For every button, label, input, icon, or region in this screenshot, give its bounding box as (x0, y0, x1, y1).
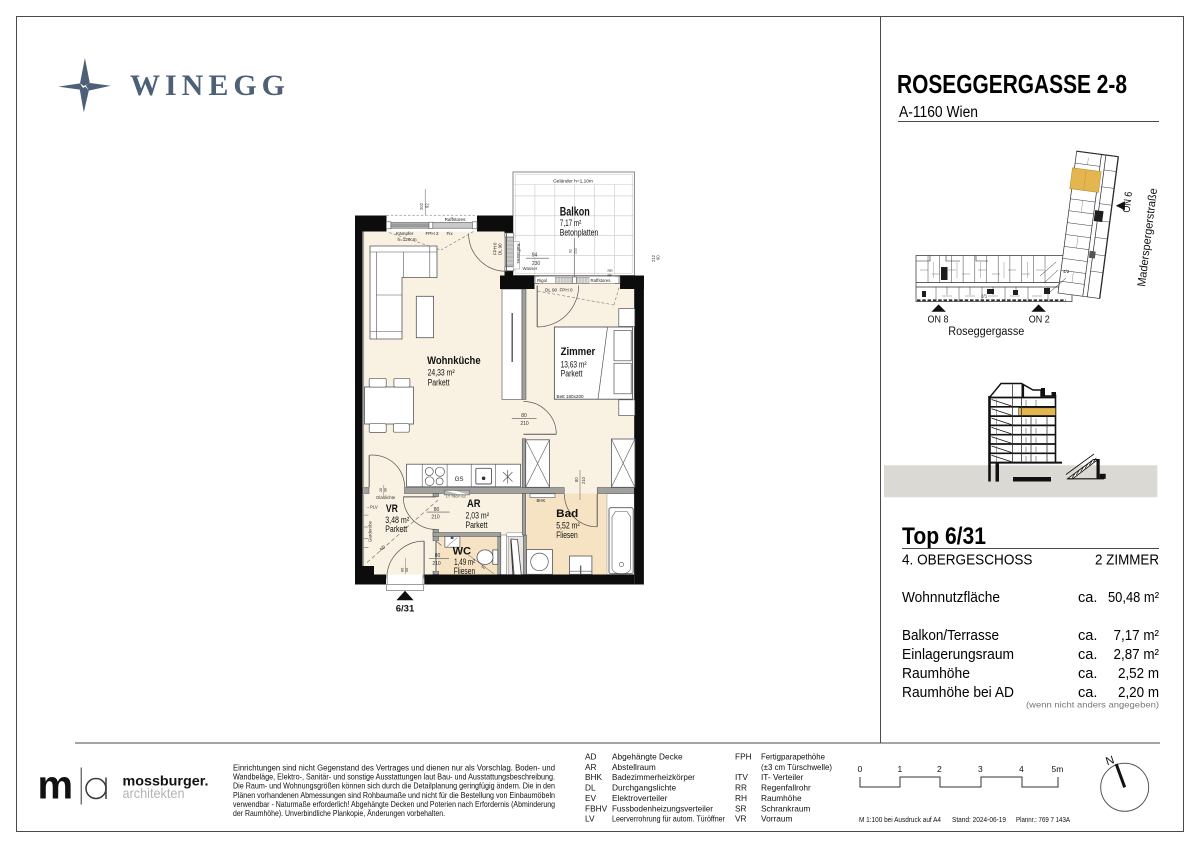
svg-text:Stand: 2024-06-19: Stand: 2024-06-19 (952, 815, 1006, 824)
svg-text:Parkett: Parkett (466, 520, 488, 530)
svg-text:7,17 m²: 7,17 m² (1114, 628, 1160, 644)
svg-text:Zimmer: Zimmer (561, 346, 596, 358)
svg-text:LT 78cm Ez: LT 78cm Ez (446, 495, 466, 499)
svg-text:Abstellraum: Abstellraum (612, 762, 656, 772)
svg-text:IT- Verteiler: IT- Verteiler (761, 772, 804, 782)
svg-text:ON 2: ON 2 (1029, 314, 1050, 326)
svg-text:4: 4 (1019, 764, 1024, 774)
svg-text:Wohnküche: Wohnküche (427, 355, 481, 367)
svg-text:DL 90: DL 90 (545, 288, 558, 293)
svg-text:RR: RR (735, 783, 747, 793)
svg-text:Parkett: Parkett (561, 368, 583, 378)
svg-text:80: 80 (435, 553, 441, 559)
svg-text:AD: AD (585, 752, 597, 762)
svg-text:98: 98 (384, 488, 388, 492)
svg-text:Regenfallrohr: Regenfallrohr (761, 783, 811, 793)
svg-text:Balkon: Balkon (560, 207, 590, 219)
svg-text:h=120cm: h=120cm (398, 237, 417, 242)
svg-text:4/2: 4/2 (1063, 269, 1070, 274)
svg-text:94: 94 (532, 253, 538, 259)
svg-text:ca.: ca. (1078, 590, 1097, 606)
svg-text:Vorraum: Vorraum (761, 814, 792, 824)
svg-text:80: 80 (574, 477, 579, 482)
svg-text:AR: AR (467, 498, 481, 510)
svg-text:210: 210 (581, 476, 586, 484)
svg-text:2: 2 (937, 764, 942, 774)
svg-text:Kämpfer: Kämpfer (396, 231, 414, 236)
svg-text:ca.: ca. (1078, 666, 1097, 682)
svg-text:Rigol: Rigol (537, 278, 547, 283)
svg-text:Einlagerungsraum: Einlagerungsraum (902, 647, 1014, 663)
svg-text:Raumhöhe bei AD: Raumhöhe bei AD (902, 685, 1014, 701)
svg-text:ON 8: ON 8 (928, 314, 949, 326)
svg-text:0: 0 (858, 764, 863, 774)
svg-text:Raumhöhe: Raumhöhe (761, 793, 802, 803)
svg-text:Raumhöhe: Raumhöhe (902, 666, 970, 682)
svg-text:Abgehängte Decke: Abgehängte Decke (612, 752, 683, 762)
svg-text:RR: RR (608, 269, 614, 273)
svg-text:Top 6/31: Top 6/31 (902, 523, 986, 550)
svg-text:ITV: ITV (735, 772, 748, 782)
svg-text:SR: SR (735, 803, 747, 813)
svg-text:ca.: ca. (1078, 647, 1097, 663)
svg-text:92: 92 (569, 249, 573, 253)
svg-text:6/31: 6/31 (396, 604, 415, 615)
svg-text:Roseggergasse: Roseggergasse (948, 326, 1024, 338)
svg-text:7,17 m²: 7,17 m² (560, 218, 582, 228)
svg-text:Durchgangslichte: Durchgangslichte (612, 783, 676, 793)
svg-text:202: 202 (419, 202, 424, 210)
svg-text:(±3 cm Türschwelle): (±3 cm Türschwelle) (761, 762, 832, 772)
svg-text:Bett 180x200: Bett 180x200 (557, 394, 585, 399)
svg-text:Wohnnutzfläche: Wohnnutzfläche (902, 590, 1000, 606)
svg-text:Plannr.: 769 7 143A: Plannr.: 769 7 143A (1016, 815, 1070, 824)
svg-text:ca.: ca. (1078, 628, 1097, 644)
svg-text:der Raumhöhe). Unverbindliche: der Raumhöhe). Unverbindliche Plankopie,… (233, 808, 445, 818)
svg-text:Fix: Fix (447, 231, 454, 236)
svg-text:→PLV: →PLV (366, 505, 378, 510)
svg-text:212: 212 (574, 248, 578, 254)
svg-text:A-1160 Wien: A-1160 Wien (899, 104, 978, 121)
svg-text:5,52 m²: 5,52 m² (556, 520, 580, 530)
svg-text:90: 90 (656, 255, 661, 260)
svg-text:210: 210 (431, 514, 440, 520)
svg-text:LV: LV (585, 814, 595, 824)
svg-text:m: m (38, 764, 74, 808)
svg-text:Fertigparapethöhe: Fertigparapethöhe (761, 752, 825, 762)
svg-text:24,33 m²: 24,33 m² (428, 367, 455, 377)
svg-text:Raffstores: Raffstores (516, 244, 521, 265)
svg-text:EV: EV (585, 793, 597, 803)
svg-text:WC: WC (453, 546, 471, 558)
svg-text:RH: RH (735, 793, 747, 803)
svg-text:FPH 0: FPH 0 (560, 288, 573, 293)
svg-text:Parkett: Parkett (385, 524, 407, 534)
svg-text:5m: 5m (1052, 764, 1064, 774)
svg-text:Wasser: Wasser (523, 266, 538, 271)
svg-text:ROSEGGERGASSE 2-8: ROSEGGERGASSE 2-8 (897, 71, 1127, 99)
svg-text:architekten: architekten (123, 786, 185, 801)
svg-text:Parkett: Parkett (428, 377, 450, 387)
svg-text:2 ZIMMER: 2 ZIMMER (1095, 553, 1159, 569)
svg-text:BHK: BHK (585, 772, 603, 782)
svg-text:2,52 m: 2,52 m (1118, 666, 1159, 682)
svg-text:2,03 m²: 2,03 m² (466, 511, 490, 521)
svg-text:BHK: BHK (537, 498, 546, 503)
svg-text:Raffstores: Raffstores (591, 278, 612, 283)
svg-text:86: 86 (401, 568, 405, 572)
svg-text:Bad: Bad (556, 508, 578, 520)
svg-text:Balkon/Terrasse: Balkon/Terrasse (902, 628, 999, 644)
svg-text:(wenn nicht anders angegeben): (wenn nicht anders angegeben) (1026, 700, 1159, 710)
svg-text:DL: DL (585, 783, 596, 793)
svg-text:DL 90: DL 90 (498, 243, 503, 255)
svg-text:GS: GS (455, 476, 464, 483)
svg-text:Betonplatten: Betonplatten (560, 228, 599, 238)
svg-text:28: 28 (379, 488, 383, 492)
svg-text:Elektroverteiler: Elektroverteiler (612, 793, 668, 803)
svg-text:210: 210 (520, 421, 529, 427)
svg-text:Glaslichte: Glaslichte (376, 495, 396, 500)
svg-text:M 1:100 bei Ausdruck auf A4: M 1:100 bei Ausdruck auf A4 (859, 815, 941, 824)
svg-text:WINEGG: WINEGG (130, 69, 285, 102)
svg-text:VR: VR (386, 503, 398, 515)
svg-text:Badezimmerheizkörper: Badezimmerheizkörper (612, 772, 695, 782)
svg-text:Schrankraum: Schrankraum (761, 803, 810, 813)
svg-text:Leerverrohrung für autom. Türö: Leerverrohrung für autom. Türöffner (612, 814, 725, 824)
svg-text:FPH 2: FPH 2 (426, 231, 439, 236)
svg-text:80: 80 (521, 413, 527, 419)
svg-text:Fliesen: Fliesen (556, 530, 578, 540)
svg-text:1: 1 (898, 764, 903, 774)
svg-text:VR: VR (735, 814, 747, 824)
svg-text:AR: AR (585, 762, 597, 772)
svg-text:92: 92 (424, 203, 429, 208)
svg-text:4. OBERGESCHOSS: 4. OBERGESCHOSS (902, 553, 1033, 569)
svg-text:Fliesen: Fliesen (454, 566, 476, 576)
svg-text:2/1: 2/1 (981, 294, 988, 299)
svg-text:210: 210 (432, 561, 441, 567)
svg-text:50,48 m²: 50,48 m² (1108, 590, 1159, 606)
svg-text:Fussbodenheizungsverteiler: Fussbodenheizungsverteiler (612, 803, 713, 813)
svg-text:FPH: FPH (735, 752, 752, 762)
svg-text:Raffstores: Raffstores (445, 217, 467, 222)
svg-text:2,87 m²: 2,87 m² (1114, 647, 1160, 663)
svg-text:3: 3 (978, 764, 983, 774)
svg-text:ON 6: ON 6 (1121, 191, 1135, 213)
svg-text:Garderobe: Garderobe (368, 520, 373, 542)
svg-text:Geländer h=1,10m: Geländer h=1,10m (553, 179, 593, 185)
svg-text:FBHV: FBHV (585, 803, 608, 813)
